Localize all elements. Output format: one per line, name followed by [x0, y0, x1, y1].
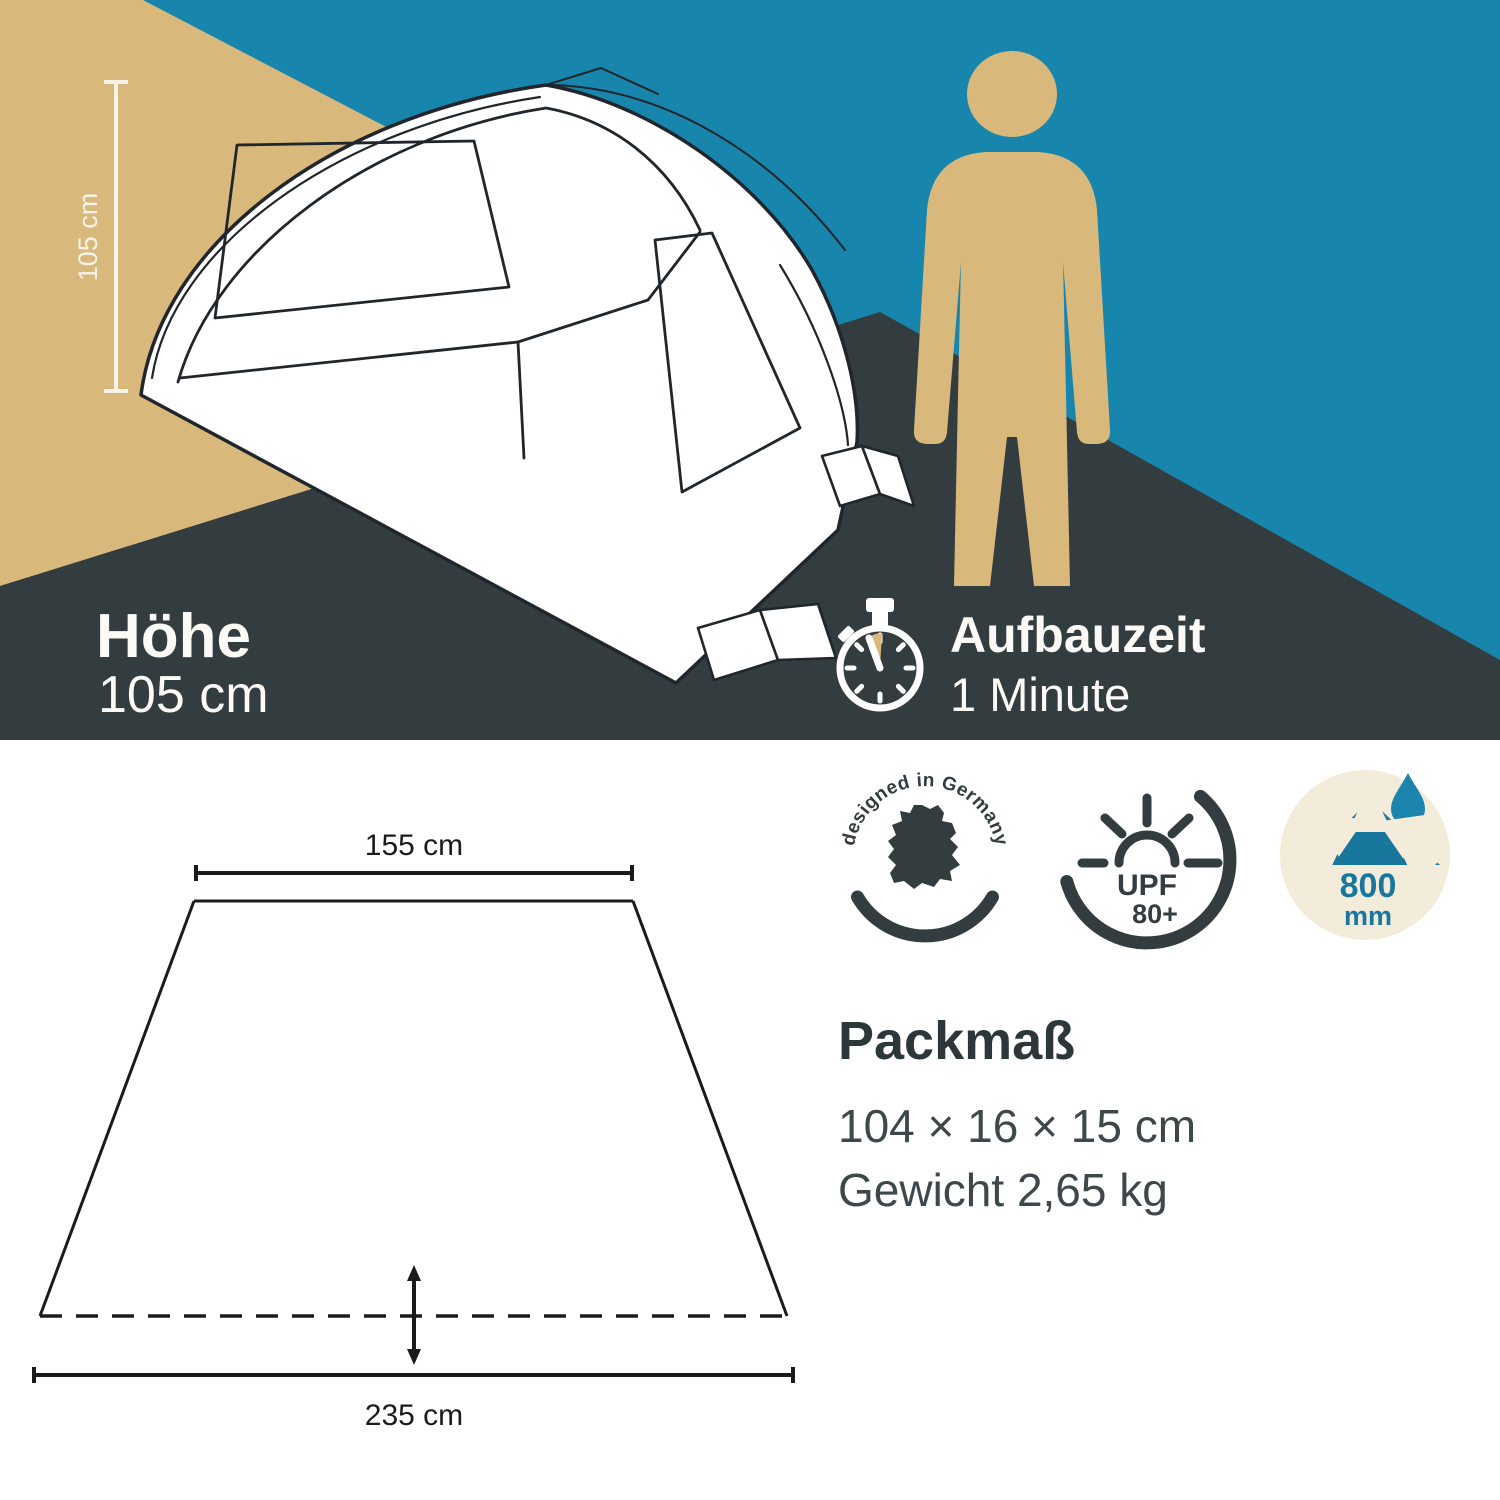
sun-protection-badge: sun protection UPF 80+	[1052, 765, 1242, 955]
upf-badge-arc-text: sun protection	[1052, 765, 1140, 803]
setup-time-title: Aufbauzeit	[950, 607, 1206, 663]
upf-suffix: 80+	[1132, 899, 1178, 929]
water-column-value: 800	[1340, 867, 1397, 905]
depth-arrowhead-up	[407, 1265, 421, 1281]
upf-value: UPF	[1117, 869, 1177, 902]
height-title: Höhe	[96, 602, 251, 671]
germany-map-icon	[888, 805, 960, 889]
back-width-measure-line	[34, 1367, 793, 1383]
pack-size-block: Packmaß 104 × 16 × 15 cm Gewicht 2,65 kg	[838, 1012, 1196, 1218]
germany-badge-bottom-arc	[858, 897, 993, 936]
floorplan-diagram: 155 cm 235 cm	[0, 740, 840, 1500]
floorplan-outline	[40, 901, 787, 1316]
banner: 105 cm Höhe	[0, 0, 1500, 740]
front-width-measure-line	[196, 865, 632, 881]
designed-in-germany-badge: designed in Germany	[830, 763, 1020, 953]
setup-time-value: 1 Minute	[950, 668, 1130, 721]
water-column-badge: 800 mm	[1275, 765, 1455, 945]
height-measure-label: 105 cm	[73, 193, 103, 282]
pack-size-title: Packmaß	[838, 1012, 1196, 1071]
infographic-root: 105 cm Höhe	[0, 0, 1500, 1500]
water-column-unit: mm	[1344, 901, 1392, 931]
height-value: 105 cm	[98, 666, 269, 724]
back-width-label: 235 cm	[365, 1399, 463, 1432]
pack-size-dimensions: 104 × 16 × 15 cm	[838, 1099, 1196, 1154]
sun-icon	[1082, 798, 1218, 863]
pack-size-weight: Gewicht 2,65 kg	[838, 1163, 1196, 1218]
depth-arrowhead-down	[407, 1349, 421, 1365]
front-width-label: 155 cm	[365, 829, 463, 862]
